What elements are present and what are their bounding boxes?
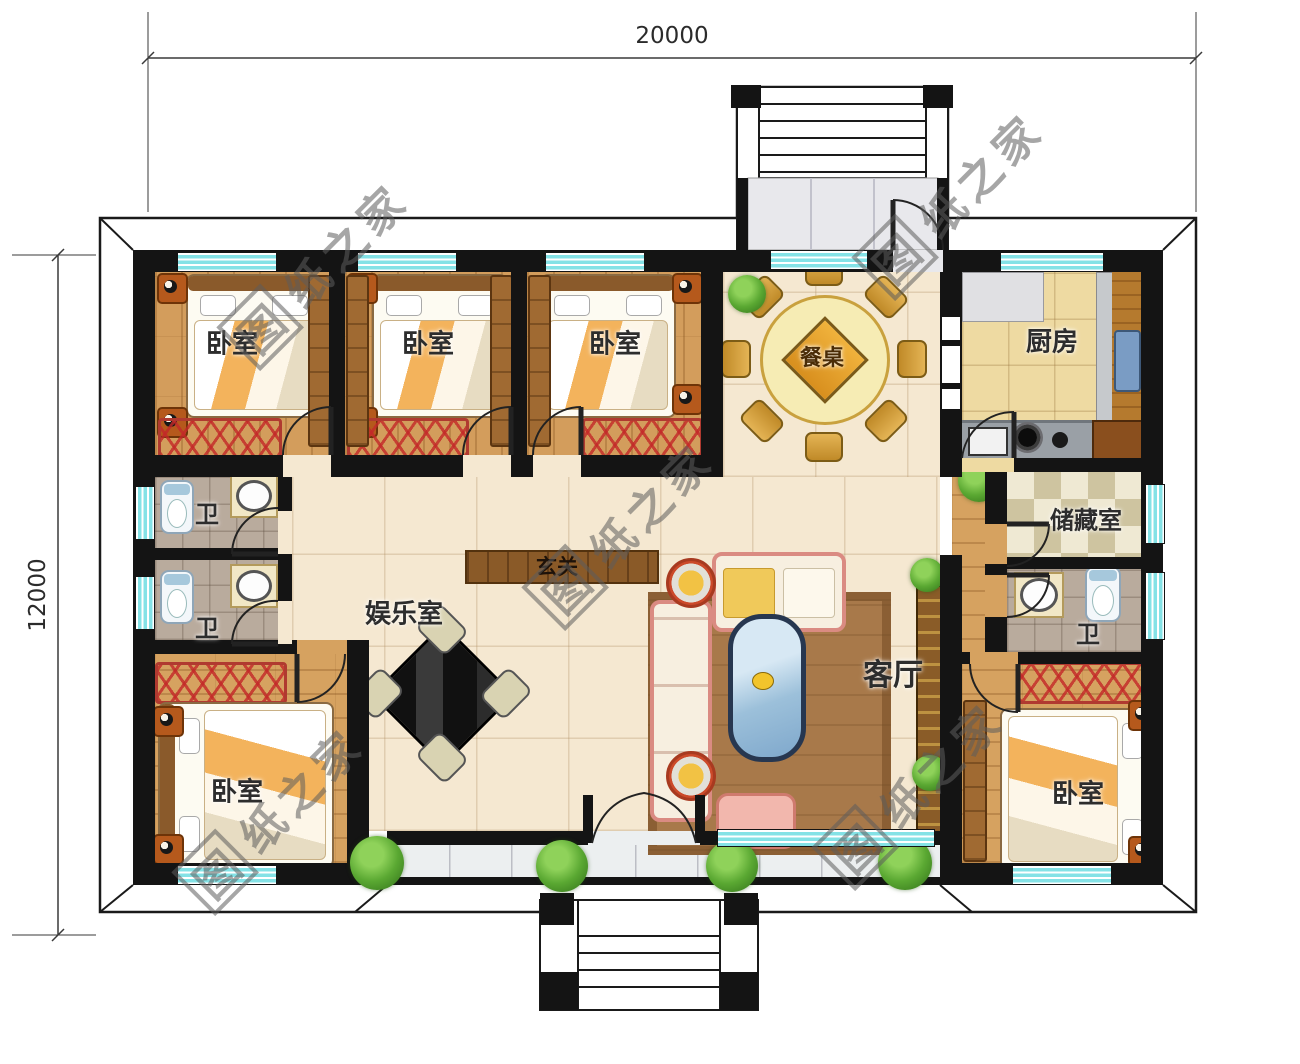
kitchen-sink [1114, 330, 1141, 392]
plant [958, 460, 1000, 502]
stove-panel [968, 427, 1008, 456]
nightstand [153, 706, 184, 737]
dimension-height: 12000 [25, 558, 51, 631]
room-label-bath: 卫 [195, 495, 219, 530]
wardrobe [528, 275, 551, 447]
room-label-storage: 储藏室 [1050, 501, 1122, 536]
room-label-entertainment: 娱乐室 [365, 594, 443, 631]
wardrobe [490, 275, 513, 447]
closet [963, 700, 987, 862]
room-label-bedroom: 卧室 [206, 324, 258, 361]
stove-knob-icon [1052, 432, 1068, 448]
top-entry-steps [731, 85, 953, 250]
bench [155, 662, 287, 704]
nightstand [153, 834, 184, 865]
window [135, 486, 155, 540]
bush [706, 840, 758, 892]
stove-burner-icon [1012, 422, 1043, 453]
plant [912, 755, 948, 791]
room-label-bath: 卫 [195, 609, 219, 644]
sink [230, 474, 278, 518]
room-label-bedroom: 卧室 [402, 324, 454, 361]
side-table [666, 751, 716, 801]
bush [350, 836, 404, 890]
room-label-bedroom: 卧室 [211, 772, 263, 809]
kitchen-upper-cabinet [962, 272, 1044, 322]
floor-plan: 卧室 卧室 卧室 餐桌 厨房 储藏室 卫 卧室 卫 卫 娱乐室 玄关 客厅 卧室… [0, 0, 1300, 1064]
window [1145, 484, 1165, 544]
dining-chair [805, 432, 843, 462]
window [135, 576, 155, 630]
nightstand [672, 273, 703, 304]
plant [910, 558, 944, 592]
nightstand [157, 273, 188, 304]
plant [728, 275, 766, 313]
window [717, 829, 935, 847]
bench [582, 418, 703, 460]
toilet [160, 480, 194, 534]
window [770, 250, 868, 270]
bench [158, 418, 282, 460]
room-label-foyer: 玄关 [536, 551, 578, 581]
toilet [160, 570, 194, 624]
nightstand [1128, 836, 1159, 867]
window [1145, 572, 1165, 640]
sink [1014, 572, 1064, 618]
room-label-dining-table: 餐桌 [800, 340, 844, 372]
window [177, 865, 277, 885]
dining-chair [897, 340, 927, 378]
window [1012, 865, 1112, 885]
bottom-entry-steps [540, 893, 758, 1010]
wardrobe [346, 275, 369, 447]
kitchen-corner-cabinet [1092, 420, 1145, 470]
nightstand [672, 384, 703, 415]
display-cabinet [916, 585, 946, 844]
nightstand [1128, 700, 1159, 731]
bench [1016, 662, 1156, 704]
room-label-living: 客厅 [863, 650, 923, 694]
coffee-table-decor [752, 672, 774, 690]
dimension-width: 20000 [635, 23, 708, 49]
bush [536, 840, 588, 892]
room-label-bedroom: 卧室 [589, 324, 641, 361]
side-table [666, 558, 716, 608]
wardrobe [308, 275, 331, 447]
window [545, 252, 645, 272]
sink [230, 564, 278, 608]
window [357, 252, 457, 272]
room-label-kitchen: 厨房 [1026, 322, 1078, 359]
room-label-bath: 卫 [1076, 615, 1100, 650]
window [1000, 252, 1104, 272]
dining-chair [721, 340, 751, 378]
room-label-bedroom: 卧室 [1052, 774, 1104, 811]
window [177, 252, 277, 272]
